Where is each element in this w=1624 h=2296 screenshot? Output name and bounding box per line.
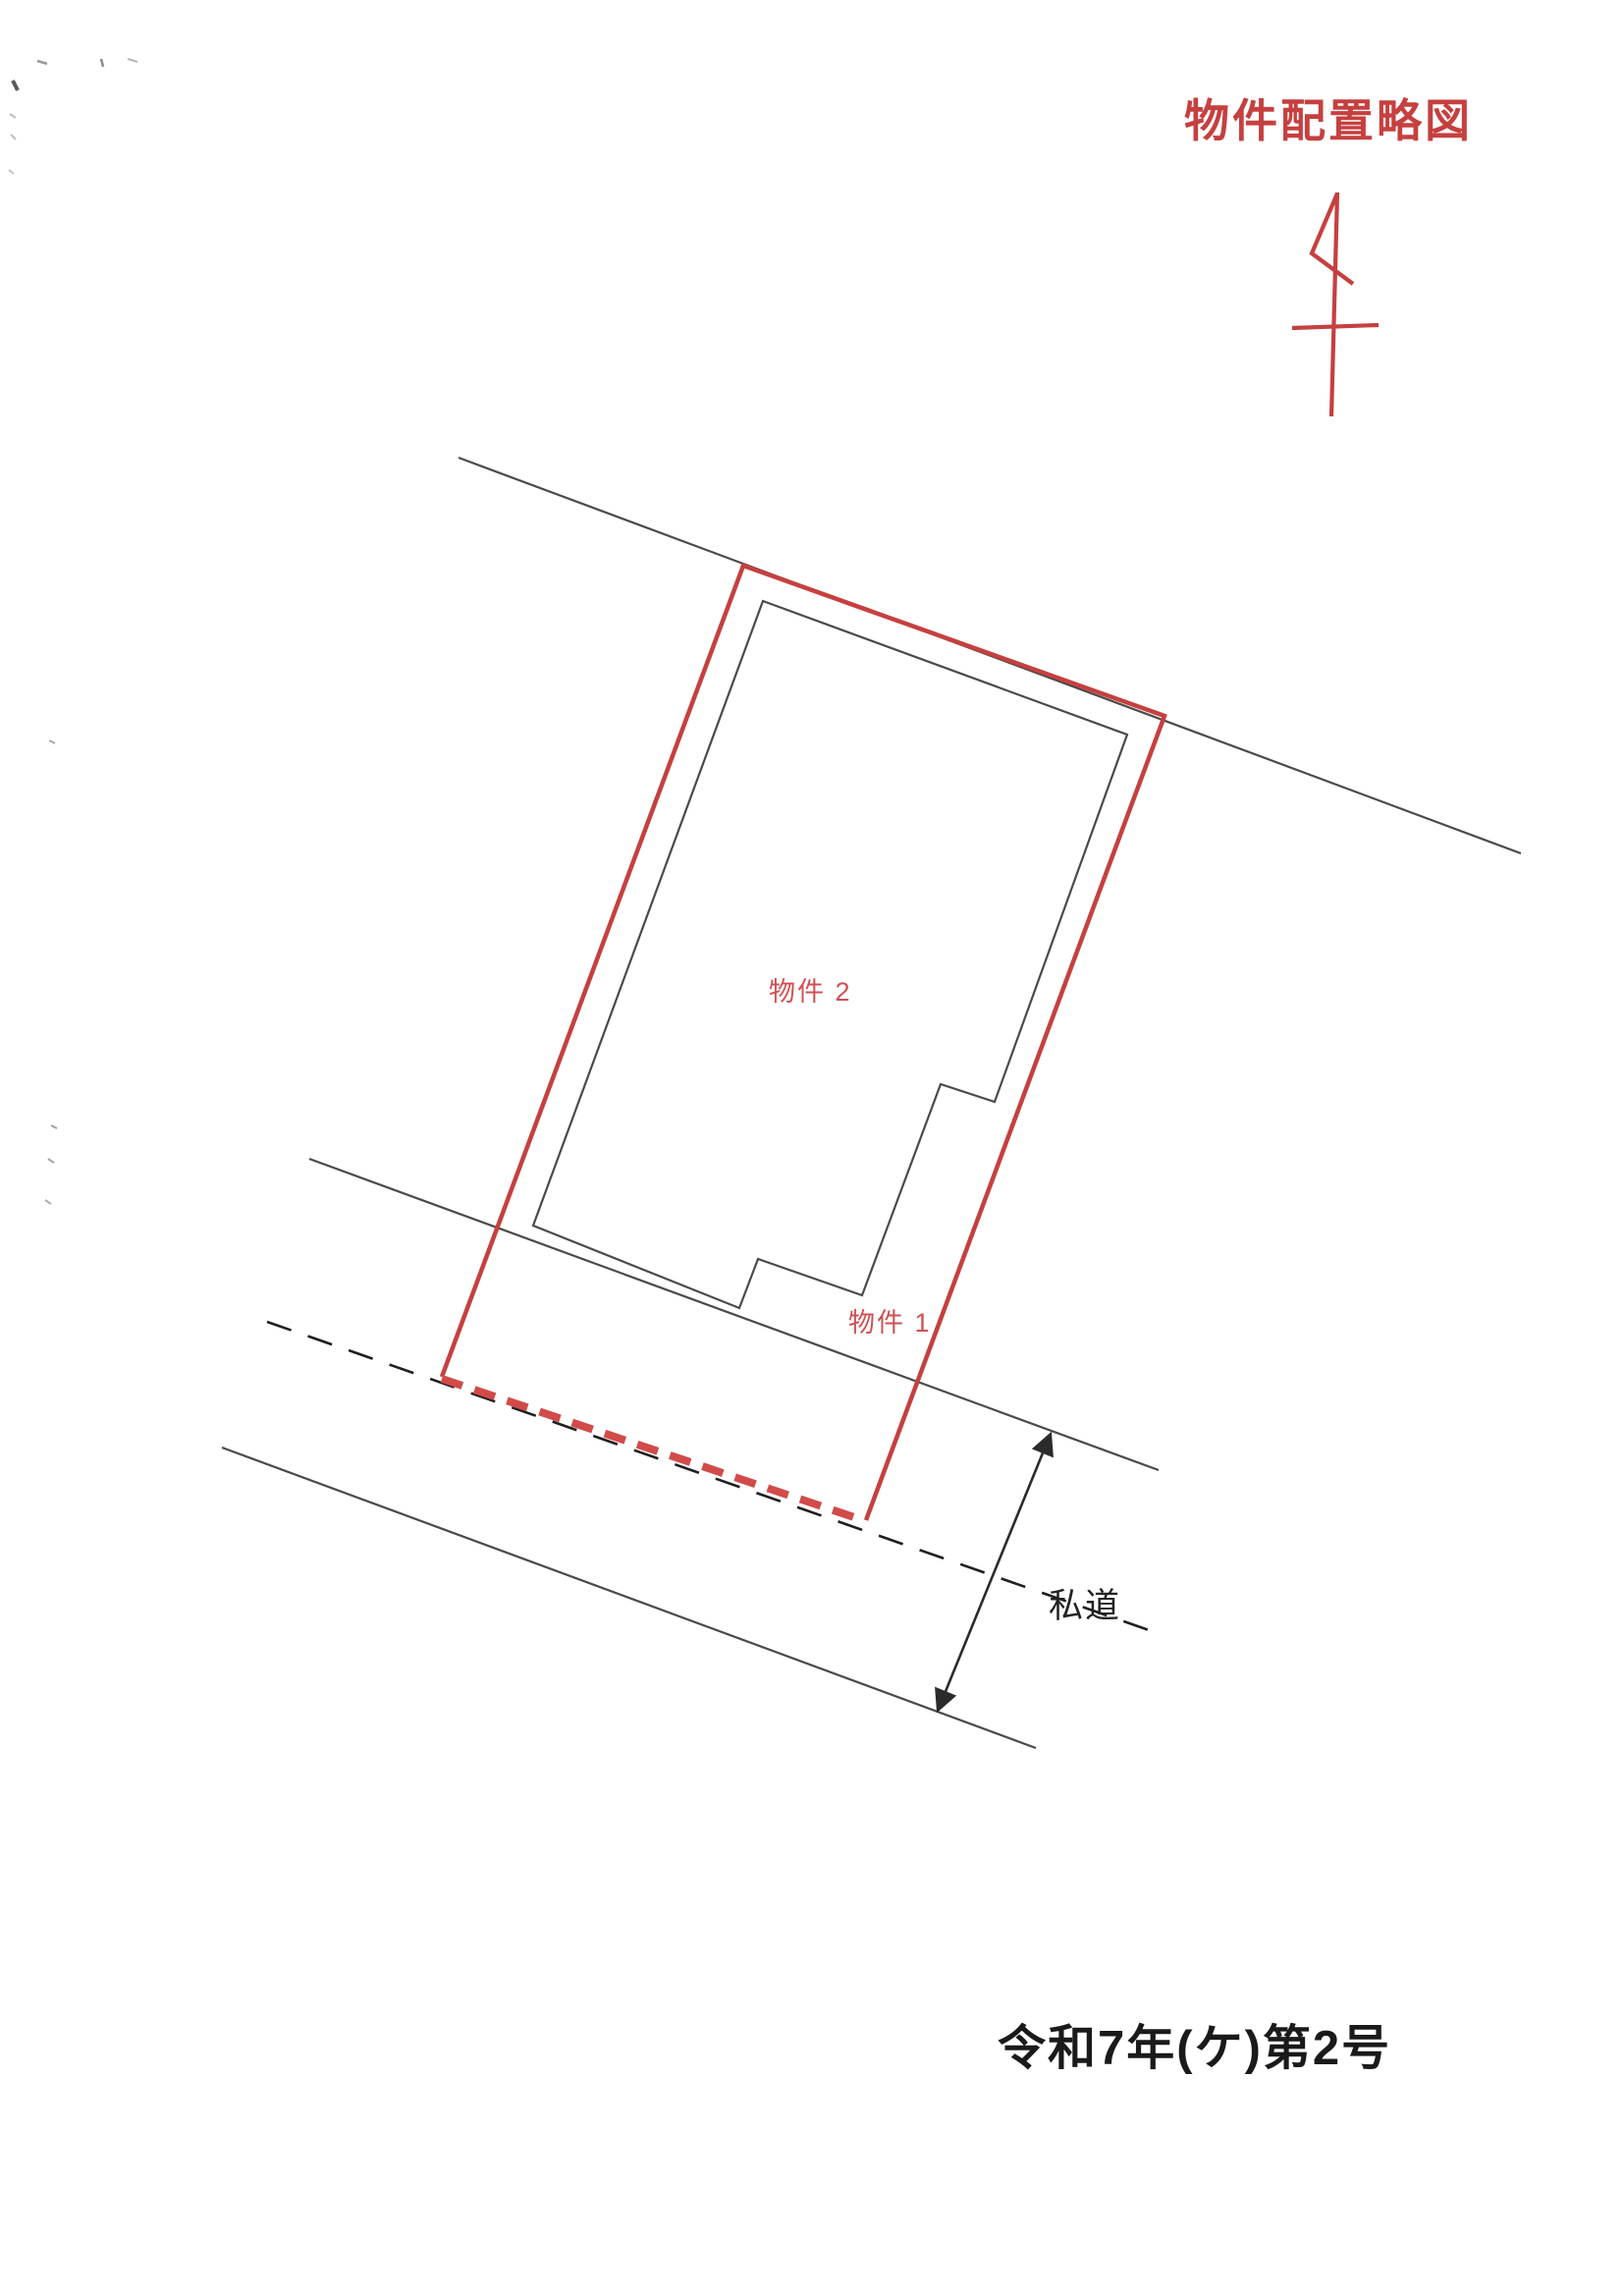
road-width-arrow: [938, 1434, 1051, 1711]
north-arrow-crossbar: [1292, 325, 1379, 328]
private-road-label: 私道: [1049, 1589, 1121, 1623]
parcel-2-label: 物件 2: [769, 979, 852, 1006]
scan-speck: [48, 1159, 54, 1163]
case-number: 令和7年(ケ)第2号: [998, 2025, 1391, 2073]
scan-speck: [11, 135, 16, 139]
scan-speck: [51, 1125, 57, 1128]
scanned-site-plan-page: 物件配置略図 物件 2 物件 1 私道 令和7年(ケ)第2号: [0, 0, 1624, 2296]
north-arrow-flag: [1312, 193, 1353, 284]
building-outline: [533, 601, 1127, 1308]
north-arrow-shaft: [1331, 192, 1337, 416]
scan-speck: [9, 170, 14, 174]
road-centerline-dashed: [267, 1322, 1155, 1632]
scan-speck: [49, 740, 55, 743]
scan-speck: [101, 59, 103, 67]
plan-lines: [9, 59, 1521, 1748]
scan-speck: [128, 59, 137, 62]
boundary-line-road-lower: [222, 1448, 1036, 1748]
scan-speck: [37, 61, 47, 64]
parcel-boundary-red-dashed: [442, 1379, 860, 1519]
scan-speck: [45, 1200, 51, 1204]
scan-speck: [13, 81, 18, 90]
scan-speck: [10, 114, 16, 118]
boundary-line-road-upper: [309, 1159, 1159, 1470]
plan-svg: [0, 0, 1624, 2296]
page-title: 物件配置略図: [1184, 98, 1473, 143]
parcel-1-label: 物件 1: [848, 1310, 932, 1337]
